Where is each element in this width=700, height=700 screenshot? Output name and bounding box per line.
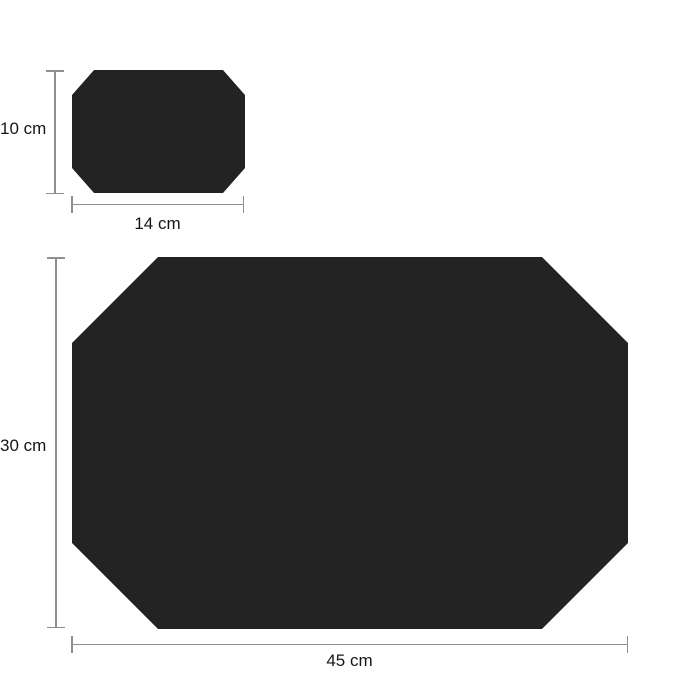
large-octagon-shape: [72, 257, 628, 629]
dimension-line: [55, 257, 57, 628]
large-width-label: 45 cm: [71, 651, 628, 671]
dimension-diagram: 10 cm 14 cm 30 cm 45 cm: [0, 0, 700, 700]
large-height-dimension: [47, 257, 65, 628]
small-height-dimension: [46, 70, 64, 194]
dimension-end-cap: [243, 196, 245, 213]
dimension-line: [54, 70, 56, 194]
small-width-dimension: [71, 196, 244, 213]
dimension-line: [71, 204, 244, 206]
small-height-label: 10 cm: [0, 119, 43, 139]
large-height-label: 30 cm: [0, 436, 43, 456]
dimension-end-cap: [46, 193, 64, 195]
dimension-line: [71, 644, 628, 646]
small-octagon-shape: [72, 70, 245, 193]
dimension-end-cap: [47, 627, 65, 629]
small-width-label: 14 cm: [71, 214, 244, 234]
